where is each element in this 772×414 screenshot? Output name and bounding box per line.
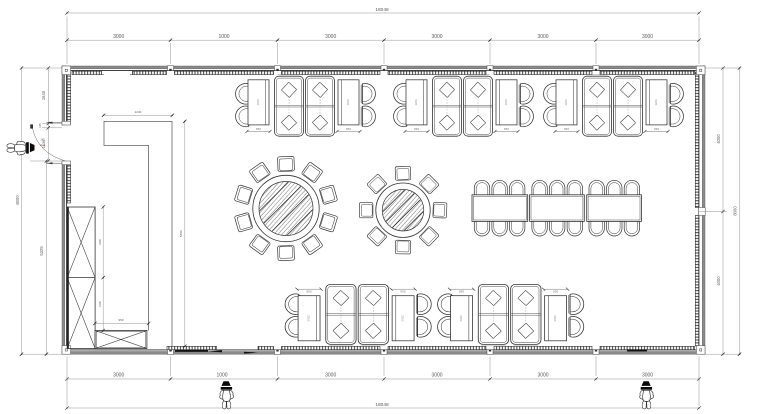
svg-text:4000: 4000 bbox=[716, 134, 721, 144]
svg-text:3000: 3000 bbox=[325, 372, 336, 378]
svg-text:5325: 5325 bbox=[39, 246, 44, 256]
svg-text:8000: 8000 bbox=[15, 195, 20, 205]
svg-text:3000: 3000 bbox=[113, 372, 124, 378]
svg-text:18048: 18048 bbox=[375, 7, 389, 13]
svg-text:1640: 1640 bbox=[41, 90, 46, 100]
svg-text:3000: 3000 bbox=[431, 372, 442, 378]
svg-text:3000: 3000 bbox=[113, 34, 124, 40]
svg-text:4000: 4000 bbox=[716, 276, 721, 286]
svg-text:2100: 2100 bbox=[98, 301, 102, 307]
svg-text:1000: 1000 bbox=[216, 372, 227, 378]
svg-text:8000: 8000 bbox=[733, 206, 738, 216]
svg-text:1000: 1000 bbox=[218, 34, 229, 40]
svg-text:3000: 3000 bbox=[431, 34, 442, 40]
svg-text:5480: 5480 bbox=[179, 230, 183, 237]
svg-text:3000: 3000 bbox=[537, 372, 548, 378]
svg-text:3000: 3000 bbox=[642, 34, 653, 40]
svg-text:3000: 3000 bbox=[642, 372, 653, 378]
svg-text:3000: 3000 bbox=[325, 34, 336, 40]
svg-text:145: 145 bbox=[40, 137, 45, 141]
svg-text:2435: 2435 bbox=[98, 239, 102, 245]
svg-text:950: 950 bbox=[118, 318, 123, 322]
svg-text:1240: 1240 bbox=[135, 110, 142, 114]
svg-text:1136: 1136 bbox=[40, 143, 46, 147]
svg-text:3000: 3000 bbox=[537, 34, 548, 40]
svg-text:18048: 18048 bbox=[375, 402, 389, 408]
svg-text:145: 145 bbox=[38, 123, 42, 128]
